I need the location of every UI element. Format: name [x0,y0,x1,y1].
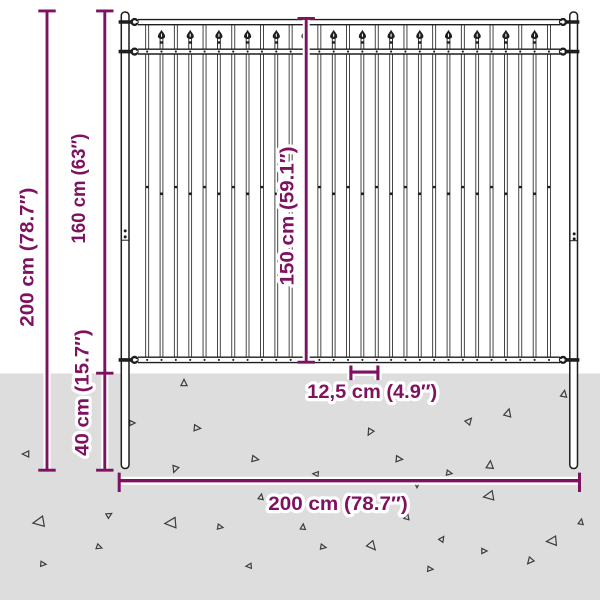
svg-text:160 cm (63″): 160 cm (63″) [68,134,90,244]
svg-text:150 cm (59.1″): 150 cm (59.1″) [277,147,299,286]
svg-text:12,5 cm (4.9″): 12,5 cm (4.9″) [307,381,437,403]
svg-text:200 cm (78.7″): 200 cm (78.7″) [17,188,39,327]
svg-text:40 cm (15.7″): 40 cm (15.7″) [72,329,94,456]
svg-text:200 cm (78.7″): 200 cm (78.7″) [268,493,408,515]
